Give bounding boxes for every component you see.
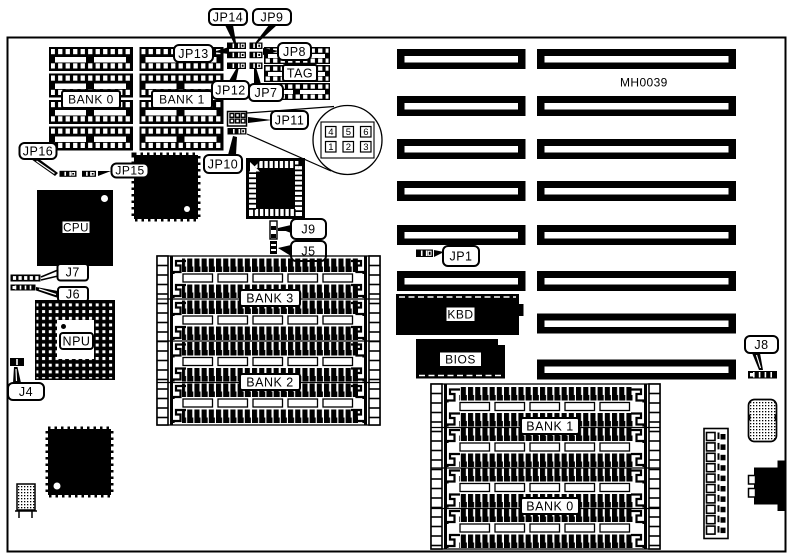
svg-text:BIOS: BIOS [445, 352, 476, 366]
svg-text:J6: J6 [66, 288, 80, 302]
svg-text:J7: J7 [66, 266, 80, 280]
svg-text:JP16: JP16 [23, 144, 54, 158]
svg-text:JP9: JP9 [260, 10, 283, 24]
svg-text:JP7: JP7 [254, 86, 277, 100]
svg-text:NPU: NPU [63, 334, 91, 348]
svg-text:JP13: JP13 [178, 47, 209, 61]
svg-text:J8: J8 [754, 338, 768, 352]
svg-text:BANK 3: BANK 3 [246, 291, 293, 305]
svg-text:BANK 0: BANK 0 [526, 499, 573, 513]
svg-text:3: 3 [363, 142, 368, 153]
svg-text:BANK 2: BANK 2 [246, 375, 293, 389]
svg-text:BANK 1: BANK 1 [526, 419, 573, 433]
svg-text:JP12: JP12 [215, 83, 246, 97]
svg-text:JP8: JP8 [283, 45, 306, 59]
svg-text:6: 6 [363, 127, 368, 138]
svg-text:CPU: CPU [63, 222, 89, 234]
svg-text:JP11: JP11 [275, 113, 305, 127]
svg-text:J9: J9 [301, 222, 315, 236]
svg-text:5: 5 [346, 127, 351, 138]
svg-text:4: 4 [328, 127, 333, 138]
svg-text:KBD: KBD [447, 307, 473, 321]
svg-text:TAG: TAG [287, 66, 313, 80]
svg-text:1: 1 [328, 142, 333, 153]
svg-text:BANK 0: BANK 0 [68, 93, 114, 107]
svg-text:JP1: JP1 [449, 249, 472, 263]
svg-text:JP15: JP15 [115, 164, 144, 178]
svg-text:J4: J4 [19, 385, 33, 399]
svg-text:JP10: JP10 [208, 157, 239, 171]
svg-text:JP14: JP14 [213, 10, 244, 24]
svg-text:MH0039: MH0039 [620, 76, 668, 90]
svg-text:2: 2 [346, 142, 351, 153]
svg-text:BANK 1: BANK 1 [159, 93, 205, 107]
